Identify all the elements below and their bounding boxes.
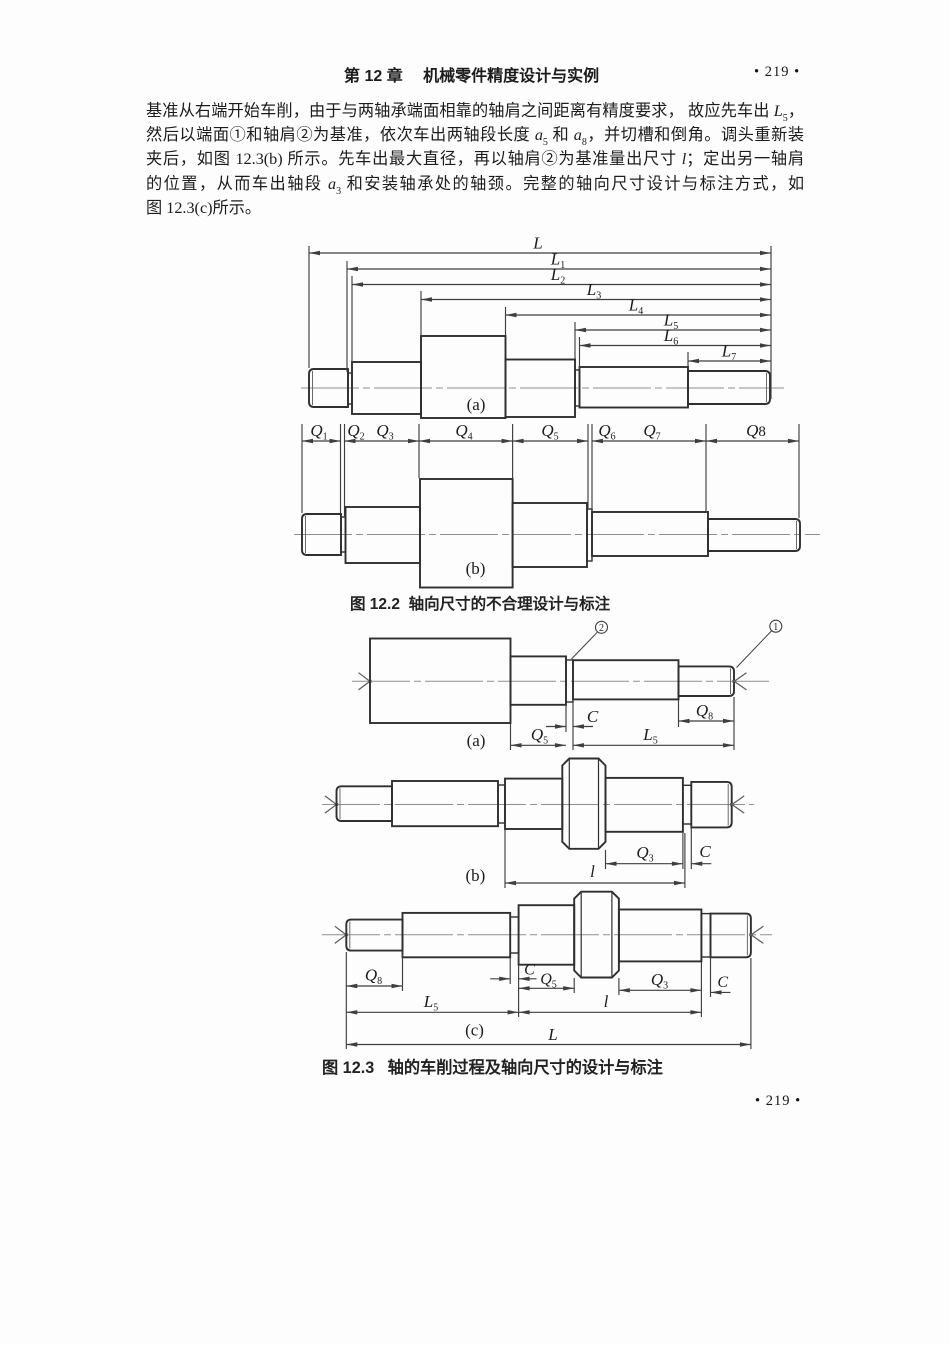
svg-text:2: 2 [599,623,604,634]
svg-text:Q5: Q5 [540,971,557,991]
svg-text:(a): (a) [467,395,486,414]
svg-text:C: C [699,842,711,861]
svg-text:Q5: Q5 [541,421,558,443]
svg-text:(a): (a) [467,731,486,750]
svg-text:L: L [532,234,542,253]
svg-text:Q3: Q3 [376,421,393,443]
svg-text:Q3: Q3 [651,970,668,992]
svg-text:Q7: Q7 [643,421,660,443]
svg-text:L5: L5 [642,725,657,747]
svg-text:L3: L3 [586,280,601,302]
svg-text:l: l [604,992,609,1011]
svg-text:Q5: Q5 [531,725,548,747]
svg-text:L4: L4 [628,296,643,318]
svg-text:Q6: Q6 [598,421,615,443]
svg-text:Q8: Q8 [746,421,766,440]
svg-text:L: L [547,1025,557,1044]
svg-text:C: C [717,974,728,991]
svg-text:Q8: Q8 [365,966,382,988]
svg-text:Q4: Q4 [455,421,472,443]
svg-text:(b): (b) [466,559,486,578]
svg-text:l: l [590,862,595,881]
svg-text:Q2: Q2 [347,421,364,443]
svg-text:C: C [587,707,599,726]
svg-text:(b): (b) [465,866,485,885]
svg-text:L5: L5 [423,992,438,1014]
svg-text:Q3: Q3 [636,843,653,865]
svg-text:Q1: Q1 [310,421,327,443]
svg-text:(c): (c) [465,1021,484,1040]
svg-text:Q8: Q8 [696,701,713,723]
svg-text:L7: L7 [721,342,736,364]
svg-text:1: 1 [773,622,778,633]
svg-text:C: C [524,962,535,979]
